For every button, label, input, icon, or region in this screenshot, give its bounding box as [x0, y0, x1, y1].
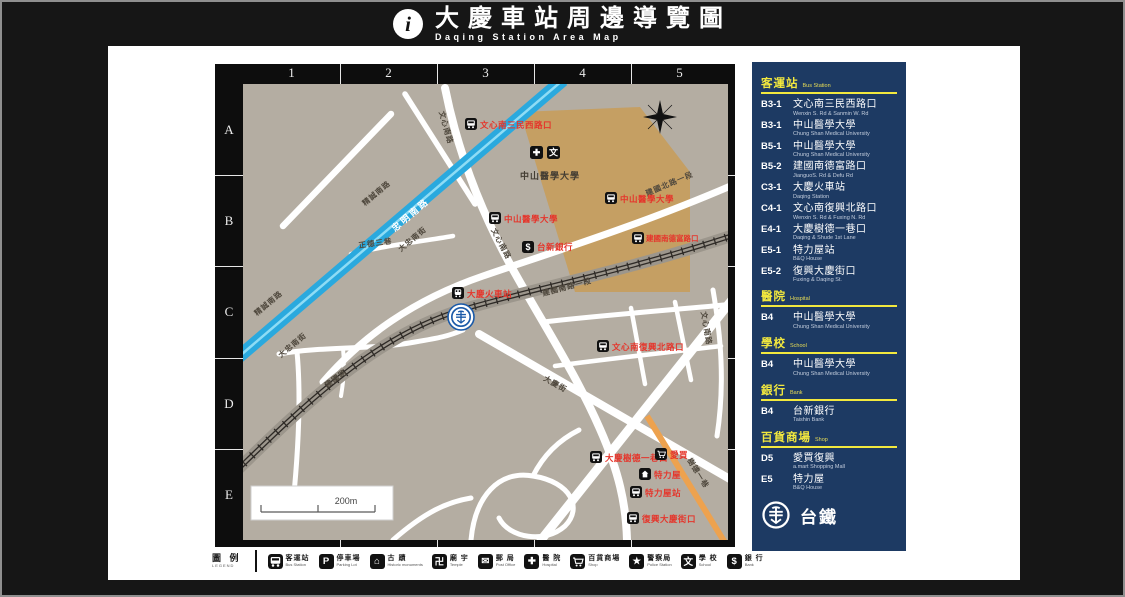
- poi-label: 台新銀行: [537, 242, 573, 252]
- grid-col-label: 5: [631, 65, 728, 83]
- page-subtitle: Daqing Station Area Map: [435, 33, 732, 42]
- hospital-icon: ✚: [533, 148, 541, 158]
- legend-item-historic-site: ⌂ 古 蹟 Historic monuments: [370, 554, 423, 569]
- poi-label: 愛買: [670, 450, 688, 460]
- bank-icon-glyph: $: [525, 242, 530, 252]
- legend-item-school: 文 學 校 School: [681, 554, 718, 569]
- list-item: C3-1 大慶火車站 Daqing Station: [761, 182, 897, 200]
- section-header-bank: 銀行 Bank: [761, 382, 897, 401]
- legend-item-parking: P 停車場 Parking Lot: [319, 554, 361, 569]
- poi-label: 文心南復興北路口: [612, 342, 684, 352]
- bus-stop-icon: [489, 212, 501, 224]
- legend-divider: [255, 550, 257, 572]
- list-item: E4-1 大慶樹德一巷口 Daqing & Shude 1st Lane: [761, 224, 897, 242]
- temple-icon: 卍: [432, 554, 447, 569]
- campus-label: 中山醫學大學: [520, 170, 580, 181]
- grid-col-label: 2: [340, 65, 437, 83]
- header: i 大慶車站周邊導覽圖 Daqing Station Area Map: [2, 2, 1123, 46]
- poi-label: 中山醫學大學: [620, 194, 674, 204]
- list-item: B3-1 中山醫學大學 Chung Shan Medical Universit…: [761, 120, 897, 138]
- bus-stop-icon: [465, 118, 477, 130]
- legend-item-hospital: ✚ 醫 院 Hospital: [524, 554, 561, 569]
- list-item: B4 中山醫學大學 Chung Shan Medical University: [761, 312, 897, 330]
- tra-logo-label: 台鐵: [800, 503, 838, 528]
- legend-title: 圖 例 LEGEND: [212, 554, 242, 568]
- poi-label: 特力屋: [654, 470, 681, 480]
- legend-bar: 圖 例 LEGEND 客運站 Bus Station P 停車場 Parking…: [212, 550, 764, 572]
- post-office-icon: ✉: [478, 554, 493, 569]
- legend-item-post-office: ✉ 郵 局 Post Office: [478, 554, 516, 569]
- hospital-icon: ✚: [524, 554, 539, 569]
- list-item: B3-1 文心南三民西路口 Wenxin S. Rd & Sanmin W. R…: [761, 99, 897, 117]
- grid-row-label: A: [215, 84, 243, 175]
- section-title: 客運站: [761, 75, 799, 91]
- sidebar-directory: 客運站 Bus Station B3-1 文心南三民西路口 Wenxin S. …: [752, 62, 906, 551]
- bus-icon: [268, 554, 283, 569]
- poi-label: 復興大慶街口: [641, 514, 696, 524]
- poi-label: 大慶火車站: [467, 289, 512, 299]
- list-item: B5-1 中山醫學大學 Chung Shan Medical Universit…: [761, 141, 897, 159]
- parking-icon: P: [319, 554, 334, 569]
- police-badge-icon: ★: [629, 554, 644, 569]
- shopping-cart-icon: [570, 554, 585, 569]
- list-item: B4 台新銀行 Taishin Bank: [761, 406, 897, 424]
- bus-stop-icon: [597, 340, 609, 352]
- legend-item-temple: 卍 廟 宇 Temple: [432, 554, 469, 569]
- bus-stop-icon: [632, 232, 644, 244]
- section-header-school: 學校 School: [761, 335, 897, 354]
- list-item: B4 中山醫學大學 Chung Shan Medical University: [761, 359, 897, 377]
- grid-col-label: 4: [534, 65, 631, 83]
- list-item: E5 特力屋 B&Q House: [761, 474, 897, 492]
- bank-icon: $: [727, 554, 742, 569]
- legend-item-police: ★ 警察局 Police Station: [629, 554, 671, 569]
- section-header-shop: 百貨商場 Shop: [761, 429, 897, 448]
- list-item: E5-2 復興大慶街口 Fuxing & Daqing St.: [761, 266, 897, 284]
- scale-label: 200m: [335, 496, 358, 506]
- map-panel: 1 2 3 4 5 A B C D E: [215, 64, 735, 547]
- tra-logo-icon: [761, 500, 791, 530]
- train-station-icon: [452, 287, 464, 299]
- grid-row-label: E: [215, 449, 243, 540]
- grid-row-label: D: [215, 358, 243, 449]
- page-title: 大慶車站周邊導覽圖: [435, 6, 732, 31]
- list-item: D5 愛買復興 a.mart Shopping Mall: [761, 453, 897, 471]
- store-icon: [639, 468, 651, 480]
- school-icon: 文: [681, 554, 696, 569]
- poi-label: 特力屋站: [645, 488, 681, 498]
- bus-stop-icon: [605, 192, 617, 204]
- legend-item-shop: 百貨商場 Shop: [570, 554, 620, 569]
- scale-bar: 200m: [251, 486, 393, 520]
- poi-label: 文心南三民西路口: [480, 120, 552, 130]
- list-item: E5-1 特力屋站 B&Q House: [761, 245, 897, 263]
- tra-logo: 台鐵: [761, 500, 897, 530]
- grid-row-label: B: [215, 175, 243, 266]
- compass-icon: [643, 100, 677, 134]
- school-icon: 文: [548, 147, 559, 158]
- section-header-bus-station: 客運站 Bus Station: [761, 75, 897, 94]
- poi-label: 中山醫學大學: [504, 214, 558, 224]
- shop-icon: [655, 448, 667, 460]
- sign-board: 1 2 3 4 5 A B C D E: [108, 46, 1020, 580]
- legend-item-bus: 客運站 Bus Station: [268, 554, 310, 569]
- grid-col-label: 3: [437, 65, 534, 83]
- poi-label: 建國南德富路口: [645, 233, 699, 243]
- list-item: C4-1 文心南復興北路口 Wenxin S. Rd & Fuxing N. R…: [761, 203, 897, 221]
- section-title-en: Bus Station: [803, 83, 831, 89]
- list-item: B5-2 建國南德富路口 JianguoS. Rd & Defu Rd: [761, 161, 897, 179]
- grid-row-label: C: [215, 266, 243, 357]
- street-map: 忠明南路 精誠南路 精誠南路 大忠南街 大忠南街 文心南路 文心南路 文心南路 …: [243, 84, 728, 540]
- section-header-hospital: 醫院 Hospital: [761, 288, 897, 307]
- station-area-map-sign: i 大慶車站周邊導覽圖 Daqing Station Area Map 1 2 …: [0, 0, 1125, 597]
- bus-stop-icon: [627, 512, 639, 524]
- info-icon: i: [393, 9, 423, 39]
- historic-site-icon: ⌂: [370, 554, 385, 569]
- grid-col-label: 1: [243, 65, 340, 83]
- bus-stop-icon: [630, 486, 642, 498]
- legend-item-bank: $ 銀 行 Bank: [727, 554, 764, 569]
- bus-stop-icon: [590, 451, 602, 463]
